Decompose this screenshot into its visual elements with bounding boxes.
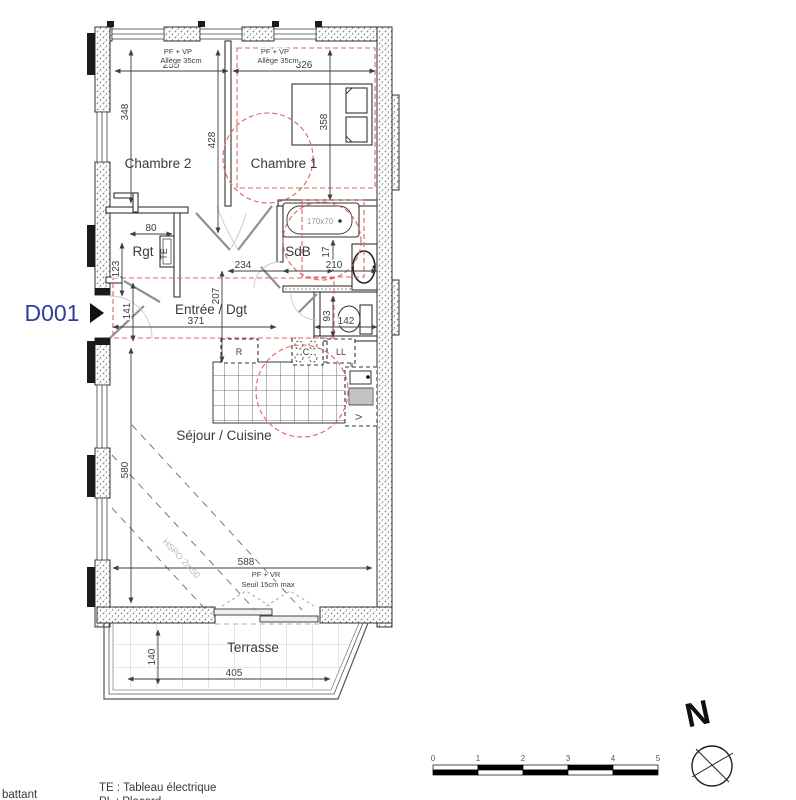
label-entree: Entrée / Dgt	[175, 302, 247, 317]
te-label: TE	[159, 248, 169, 260]
dim-entry-height: 141	[122, 302, 133, 319]
scale-tick-2: 2	[521, 754, 526, 763]
washer-label: LL	[336, 347, 346, 357]
legend-te: TE : Tableau électrique	[99, 782, 216, 794]
dim-ch2-height: 348	[120, 103, 131, 120]
ceiling-note: HSPO 2m50	[161, 537, 203, 581]
scale-tick-4: 4	[611, 754, 616, 763]
unit-marker[interactable]: D001	[25, 300, 104, 326]
dim-entry-width: 371	[188, 316, 205, 327]
radiator	[349, 388, 373, 405]
scale-tick-5: 5	[656, 754, 661, 763]
dim-terrasse-depth: 140	[147, 648, 158, 665]
scale-bar: 0 1 2 3 4 5	[431, 754, 661, 775]
rgt-door-leaf	[124, 281, 160, 302]
scale-tick-1: 1	[476, 754, 481, 763]
dim-rgt-width: 80	[145, 223, 157, 234]
dim-sdb-offset: 17	[321, 246, 332, 258]
vmc-label: V	[354, 414, 364, 420]
label-sejour: Séjour / Cuisine	[176, 428, 271, 443]
dim-terrasse-width: 405	[226, 668, 243, 679]
hob-label: C	[303, 347, 310, 357]
legend-pl: PL : Placard	[99, 796, 161, 800]
label-chambre1: Chambre 1	[251, 156, 318, 171]
north-compass-icon: N	[682, 693, 733, 786]
bathtub-size-label: 170x70	[307, 217, 334, 226]
dim-hall-width: 234	[235, 260, 252, 271]
exterior-hatch-right-1	[392, 95, 399, 190]
chambre2-door-leaf	[196, 213, 230, 250]
wc-tank	[360, 305, 372, 334]
bay-window	[214, 591, 320, 624]
dim-ch1-height: 358	[319, 113, 330, 130]
dim-mid-height: 428	[207, 131, 218, 148]
fridge-label: R	[236, 347, 243, 357]
label-chambre2: Chambre 2	[125, 156, 192, 171]
pillow-2	[346, 117, 367, 142]
legend: battant TE : Tableau électrique PL : Pla…	[2, 782, 216, 800]
bay-note-1: PF + VR	[252, 570, 281, 579]
dim-rgt-height: 123	[111, 260, 122, 277]
dim-wc-width: 142	[338, 316, 355, 327]
floor-plan: 255 326 348 428 358 80 123 234 210 17 20…	[0, 0, 796, 800]
label-sdb: SdB	[285, 244, 311, 259]
window-ch1-note-1: PF + VP	[261, 47, 289, 56]
scale-tick-3: 3	[566, 754, 571, 763]
window-ch2-note-2: Allège 35cm	[160, 56, 201, 65]
dim-sejour-width: 588	[238, 557, 255, 568]
unit-arrow-icon	[90, 303, 104, 323]
dim-wc-height: 93	[322, 310, 333, 322]
label-rgt: Rgt	[132, 244, 153, 259]
pillow-1	[346, 88, 367, 113]
north-label: N	[682, 693, 714, 735]
scale-tick-0: 0	[431, 754, 436, 763]
exterior-hatch-right-2	[392, 280, 399, 335]
chambre1-door-arc	[217, 206, 238, 250]
dim-sejour-height: 580	[120, 461, 131, 478]
bay-note-2: Seuil 15cm max	[241, 580, 295, 589]
chambre1-door-leaf	[238, 206, 272, 250]
window-ch2-note-1: PF + VP	[164, 47, 192, 56]
dim-sdb-width: 210	[326, 260, 343, 271]
window-ch1-note-2: Allège 35cm	[257, 56, 298, 65]
legend-battant: battant	[2, 789, 38, 800]
unit-label[interactable]: D001	[25, 300, 80, 326]
terrace	[104, 623, 368, 699]
label-terrasse: Terrasse	[227, 640, 279, 655]
